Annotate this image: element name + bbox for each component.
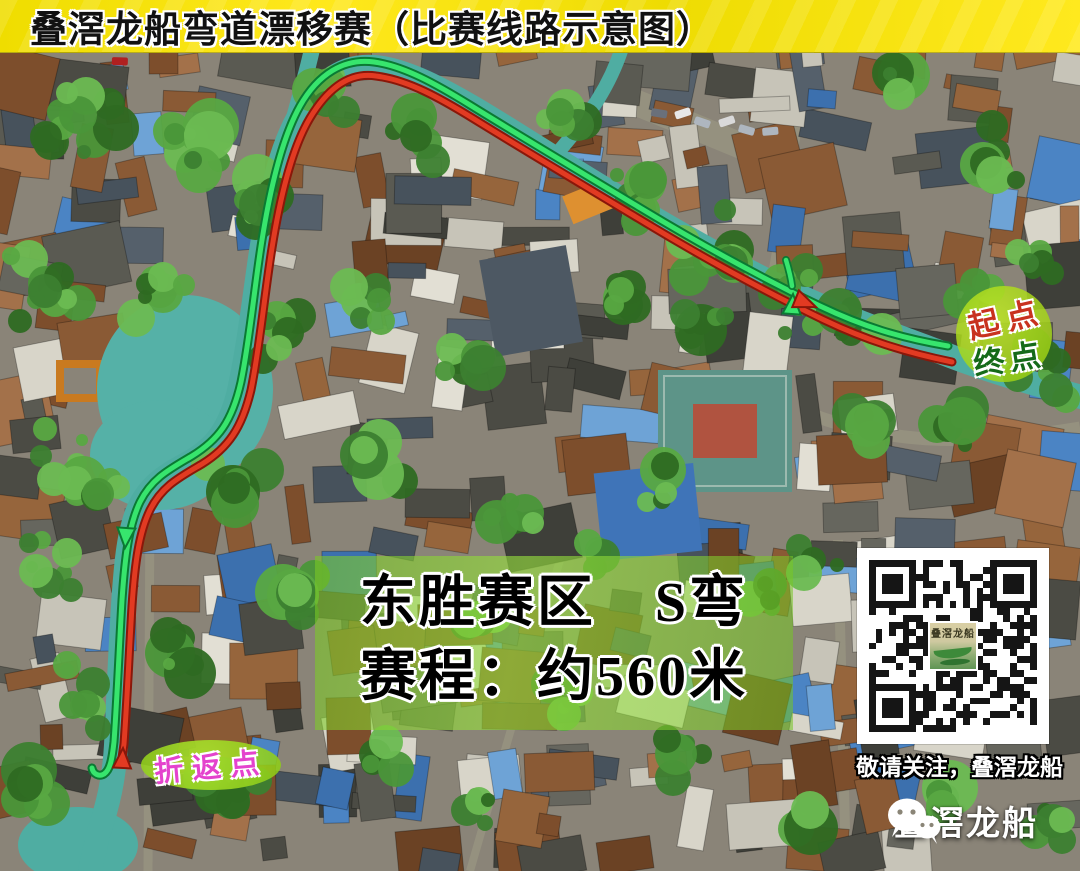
qr-logo-text: 叠滘龙船 xyxy=(930,625,976,640)
race-area-line: 东胜赛区 S弯 xyxy=(315,566,793,640)
large-slate-roof xyxy=(479,245,583,357)
qr-caption: 敬请关注，叠滘龙船 xyxy=(856,748,1066,782)
orange-frame-courtyard xyxy=(64,368,96,394)
qr-logo-art: 叠滘龙船 xyxy=(930,623,976,669)
header-banner: 叠滘龙船弯道漂移赛（比赛线路示意图） xyxy=(0,0,1080,53)
turnaround-label: 折返点 xyxy=(152,739,269,791)
qr-code: 叠滘龙船 xyxy=(857,548,1049,744)
qr-logo: 叠滘龙船 xyxy=(928,621,978,671)
race-info-box: 东胜赛区 S弯 赛程：约560米 xyxy=(315,556,793,730)
wechat-footer: 叠滘龙船 xyxy=(886,796,1038,845)
dragon-boat-art-2 xyxy=(940,658,970,666)
wechat-icon xyxy=(886,796,942,850)
start-finish-badge: 起点 终点 xyxy=(956,286,1052,382)
page-title: 叠滘龙船弯道漂移赛（比赛线路示意图） xyxy=(0,0,714,53)
race-distance-line: 赛程：约560米 xyxy=(315,640,793,714)
poster: 叠滘龙船弯道漂移赛（比赛线路示意图） 东胜赛区 S弯 赛程：约560米 起点 终… xyxy=(0,0,1080,871)
turnaround-badge: 折返点 xyxy=(141,740,281,790)
dragon-boat-art xyxy=(934,647,973,660)
